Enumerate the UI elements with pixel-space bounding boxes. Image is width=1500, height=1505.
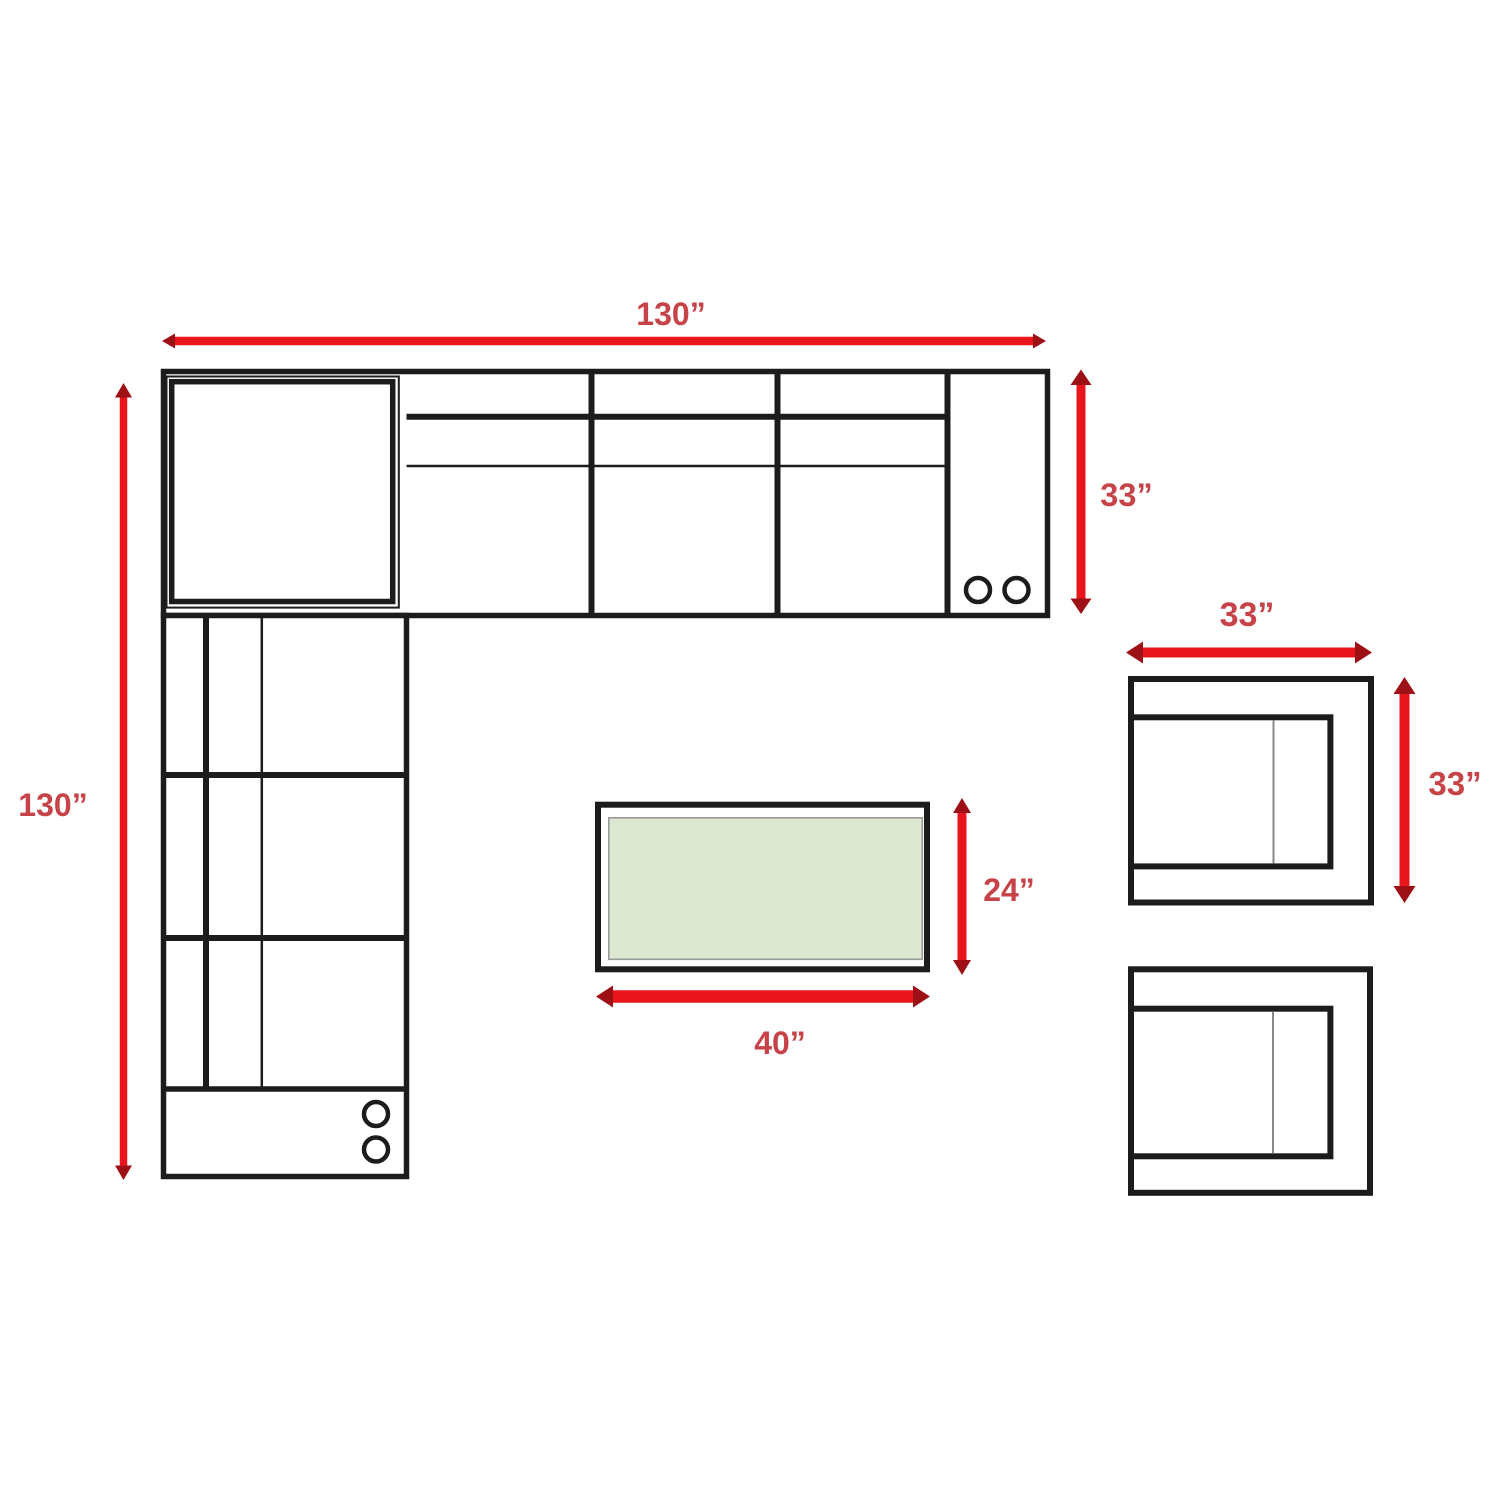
svg-text:130”: 130” bbox=[18, 787, 87, 823]
svg-text:24”: 24” bbox=[983, 872, 1035, 908]
svg-text:40”: 40” bbox=[754, 1025, 806, 1061]
svg-text:33”: 33” bbox=[1428, 765, 1481, 802]
svg-text:33”: 33” bbox=[1220, 596, 1275, 634]
svg-text:130”: 130” bbox=[636, 296, 705, 332]
svg-text:33”: 33” bbox=[1100, 477, 1152, 513]
